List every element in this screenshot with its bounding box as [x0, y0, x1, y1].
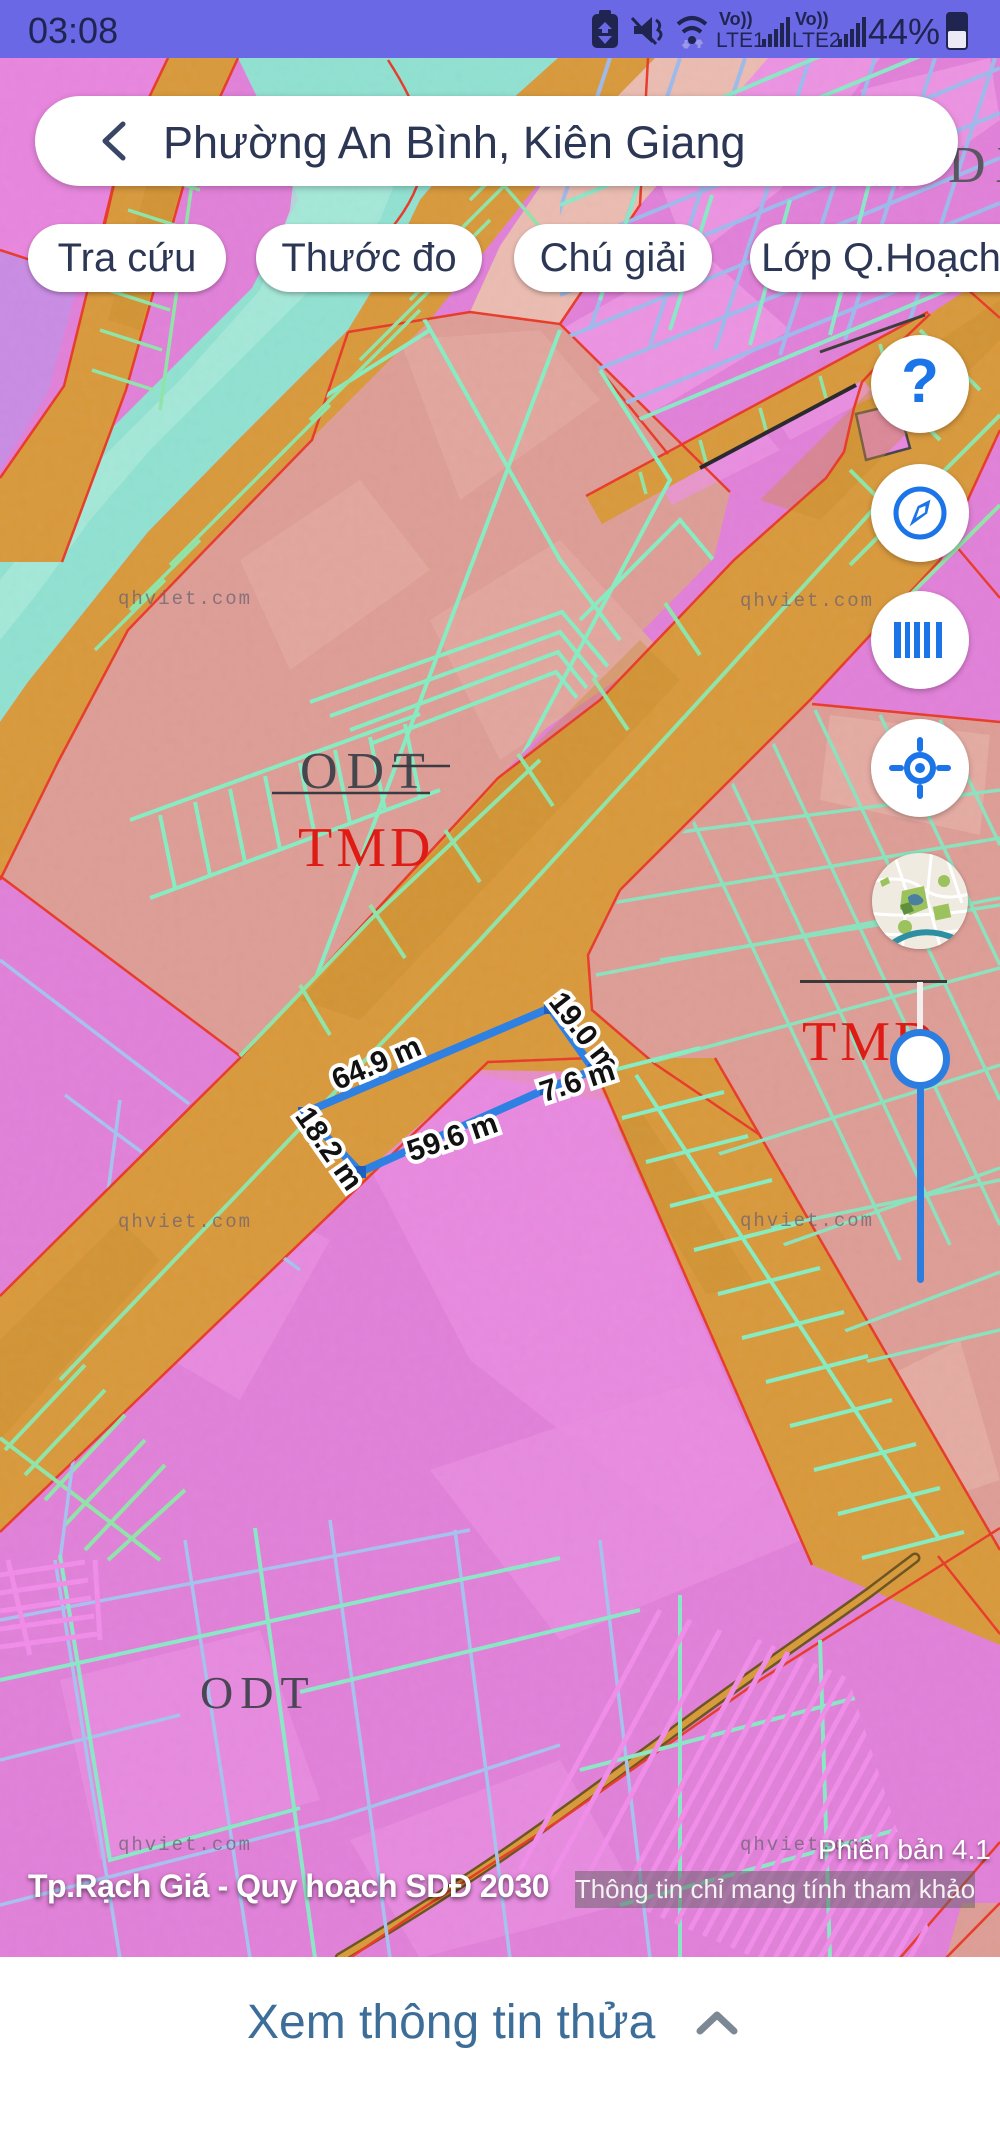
svg-text:ODT: ODT [300, 743, 434, 800]
svg-text:44%: 44% [868, 11, 940, 52]
svg-text:qhviet.com: qhviet.com [118, 1834, 252, 1856]
svg-text:LTE1: LTE1 [716, 29, 765, 52]
svg-text:LTE2: LTE2 [792, 29, 841, 52]
svg-text:qhviet.com: qhviet.com [118, 1211, 252, 1233]
svg-text:Vo)): Vo)) [795, 9, 829, 29]
svg-text:ODT: ODT [200, 1667, 316, 1718]
svg-text:qhviet.com: qhviet.com [740, 590, 874, 612]
svg-text:qhviet.com: qhviet.com [740, 1210, 874, 1232]
svg-text:Vo)): Vo)) [719, 9, 753, 29]
svg-text:qhviet.com: qhviet.com [118, 588, 252, 610]
svg-text:TMD: TMD [298, 817, 434, 879]
